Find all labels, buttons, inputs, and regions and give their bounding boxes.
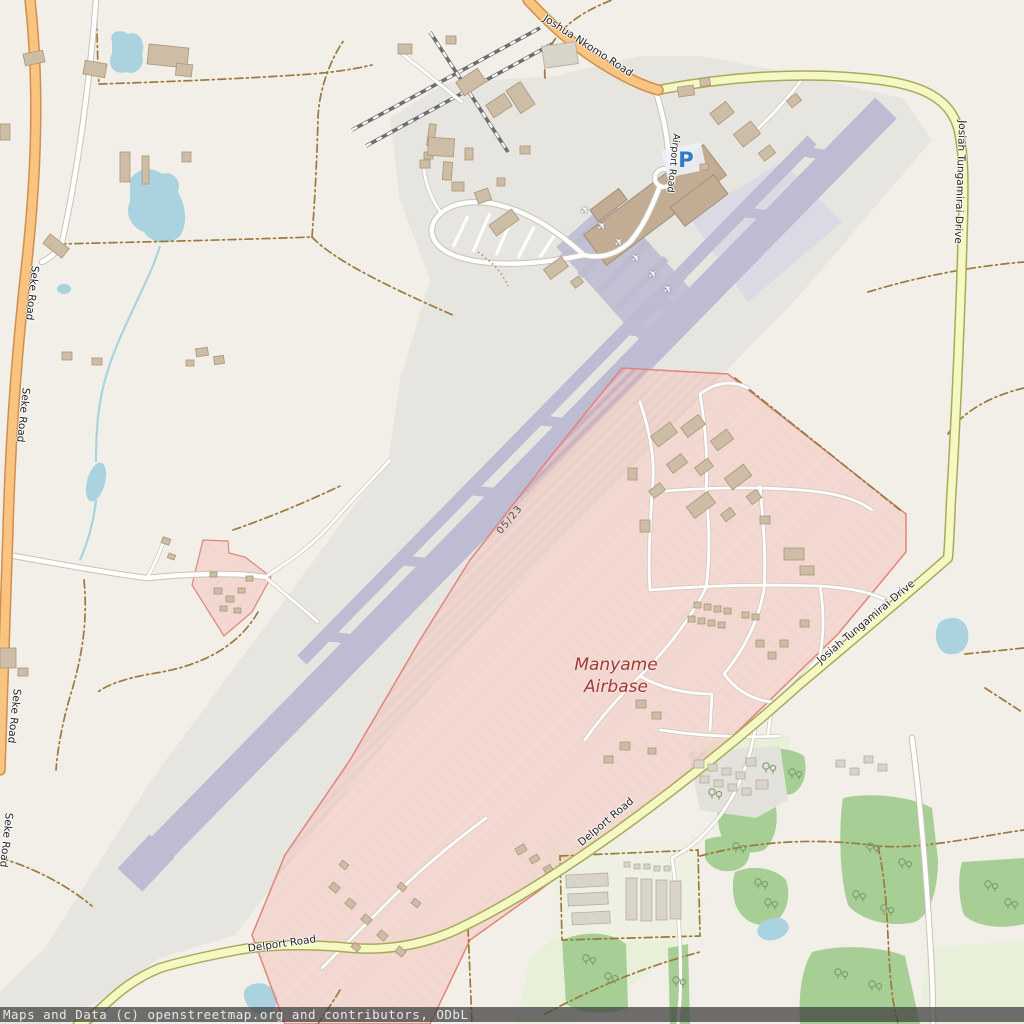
building (722, 768, 731, 775)
building (714, 606, 721, 612)
building (624, 862, 630, 867)
building (427, 137, 454, 157)
airbase-name-line2: Airbase (574, 676, 657, 698)
building (746, 758, 756, 766)
building (0, 124, 10, 140)
building (742, 612, 749, 618)
building (246, 576, 253, 581)
building (641, 879, 652, 921)
attribution-bar: Maps and Data (c) openstreetmap.org and … (0, 1007, 1024, 1022)
building (714, 780, 723, 787)
building (566, 873, 609, 888)
building (699, 77, 710, 86)
building (736, 772, 745, 779)
building (442, 162, 452, 181)
attribution-text: Maps and Data (c) openstreetmap.org and … (0, 1007, 469, 1022)
building (636, 700, 646, 708)
building (836, 760, 845, 767)
building (452, 182, 464, 191)
building (664, 866, 670, 871)
building (120, 152, 130, 182)
building (175, 63, 192, 77)
building (728, 784, 737, 791)
building (226, 596, 234, 602)
building (800, 566, 814, 575)
building (742, 788, 751, 795)
building (0, 648, 16, 668)
building (234, 608, 241, 613)
building (694, 760, 704, 768)
airbase-name-label: Manyame Airbase (574, 654, 657, 698)
building (420, 160, 430, 168)
airbase-name-line1: Manyame (574, 654, 657, 676)
building (800, 620, 809, 627)
building (497, 178, 505, 186)
building (670, 881, 681, 919)
building (446, 36, 456, 44)
building (850, 768, 859, 775)
building (626, 878, 637, 920)
building (760, 516, 770, 524)
building (568, 892, 609, 906)
building (210, 572, 217, 577)
building (648, 748, 656, 754)
building (708, 620, 715, 626)
building (654, 866, 660, 871)
building (214, 588, 222, 594)
building (656, 880, 667, 920)
building (142, 156, 149, 184)
building (652, 712, 661, 719)
building (542, 42, 579, 69)
building (398, 44, 412, 54)
building (718, 622, 725, 628)
building (768, 652, 776, 659)
building (213, 355, 224, 364)
building (220, 606, 227, 611)
building (724, 608, 731, 614)
building (752, 614, 759, 620)
building (688, 616, 695, 622)
building (238, 588, 245, 593)
building (644, 864, 650, 869)
building (186, 360, 194, 366)
building (465, 148, 473, 160)
building (756, 780, 768, 789)
building (92, 358, 102, 365)
building (780, 640, 788, 647)
building (878, 764, 887, 771)
building (698, 618, 705, 624)
building (520, 146, 530, 154)
building (620, 742, 630, 750)
building (634, 864, 640, 869)
building (700, 776, 709, 783)
building (640, 520, 650, 532)
building (864, 756, 873, 763)
building (700, 164, 708, 170)
building (62, 352, 72, 360)
building (182, 152, 191, 162)
building (704, 604, 711, 610)
map-tiles (0, 0, 1024, 1024)
building (196, 347, 209, 357)
building (18, 668, 28, 676)
building (628, 468, 637, 480)
building (694, 602, 701, 608)
building (604, 756, 613, 763)
building (677, 85, 694, 97)
building (708, 764, 717, 771)
building (756, 640, 764, 647)
building (784, 548, 804, 560)
building (572, 911, 611, 925)
map-canvas[interactable]: Joshua Nkomo Road Josiah Tungamirai Driv… (0, 0, 1024, 1024)
